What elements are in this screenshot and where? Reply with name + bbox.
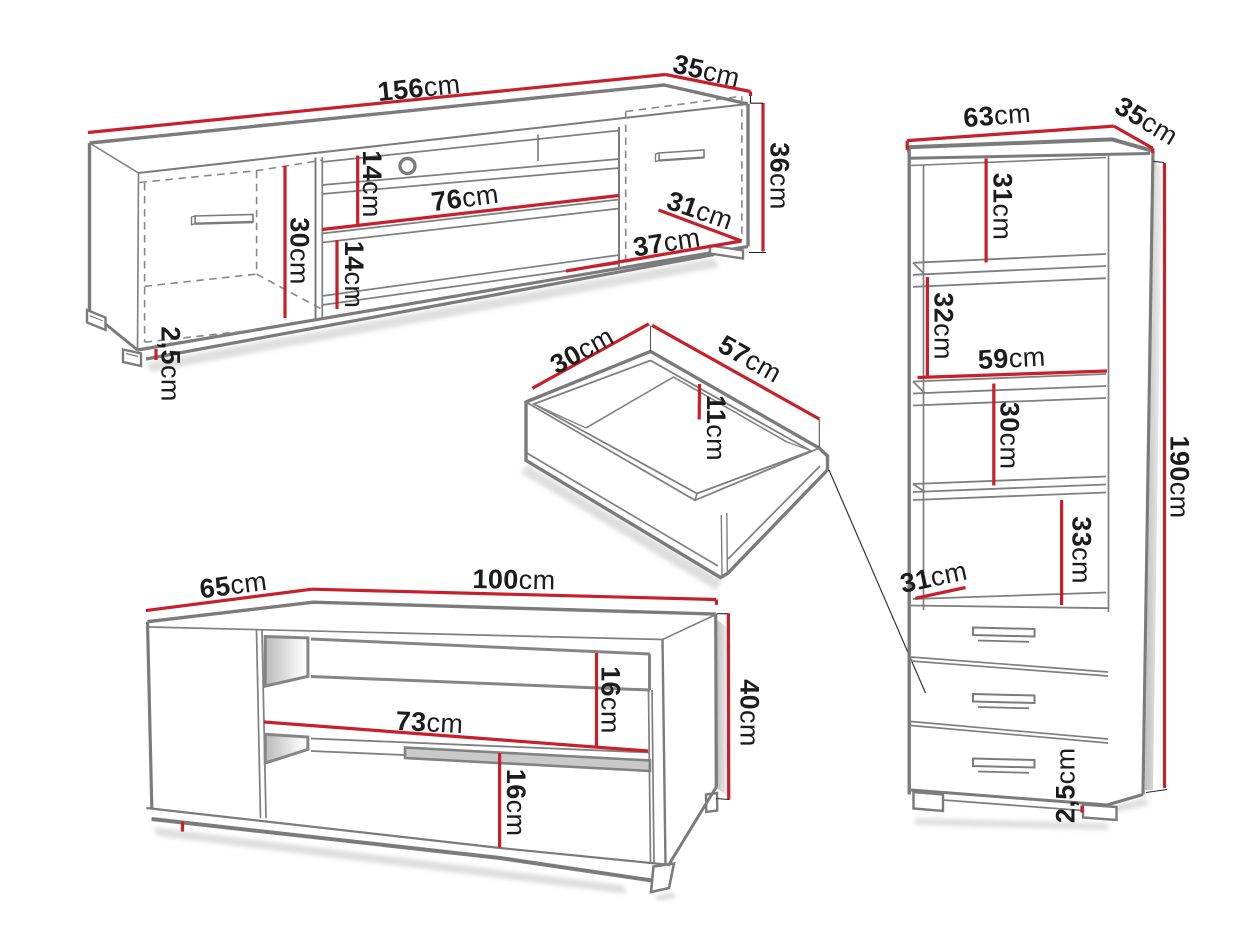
svg-text:65cm: 65cm <box>198 566 269 604</box>
svg-text:40cm: 40cm <box>734 679 764 747</box>
svg-text:31cm: 31cm <box>988 173 1018 241</box>
svg-text:63cm: 63cm <box>962 98 1032 133</box>
svg-text:16cm: 16cm <box>596 666 626 734</box>
svg-text:156cm: 156cm <box>376 69 462 107</box>
svg-text:14cm: 14cm <box>339 241 369 309</box>
svg-text:2,5cm: 2,5cm <box>156 326 186 402</box>
svg-text:32cm: 32cm <box>928 292 958 360</box>
svg-text:16cm: 16cm <box>501 769 531 837</box>
svg-text:11cm: 11cm <box>701 395 731 461</box>
svg-text:73cm: 73cm <box>395 706 464 739</box>
svg-text:59cm: 59cm <box>977 342 1046 375</box>
svg-text:30cm: 30cm <box>285 217 315 285</box>
svg-text:33cm: 33cm <box>1066 516 1096 584</box>
svg-text:30cm: 30cm <box>995 402 1025 470</box>
svg-text:36cm: 36cm <box>765 142 795 210</box>
svg-text:190cm: 190cm <box>1165 435 1195 518</box>
svg-text:2,5cm: 2,5cm <box>1051 748 1081 824</box>
svg-text:35cm: 35cm <box>670 49 743 93</box>
svg-text:14cm: 14cm <box>357 150 387 218</box>
svg-text:100cm: 100cm <box>472 564 556 595</box>
